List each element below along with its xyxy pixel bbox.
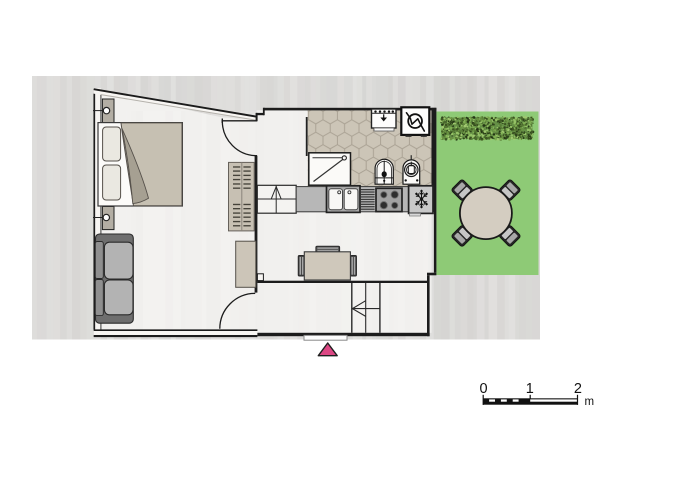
svg-text:1: 1 xyxy=(526,381,534,397)
svg-text:0: 0 xyxy=(479,381,487,397)
svg-text:m: m xyxy=(585,396,595,408)
svg-text:2: 2 xyxy=(574,381,582,397)
